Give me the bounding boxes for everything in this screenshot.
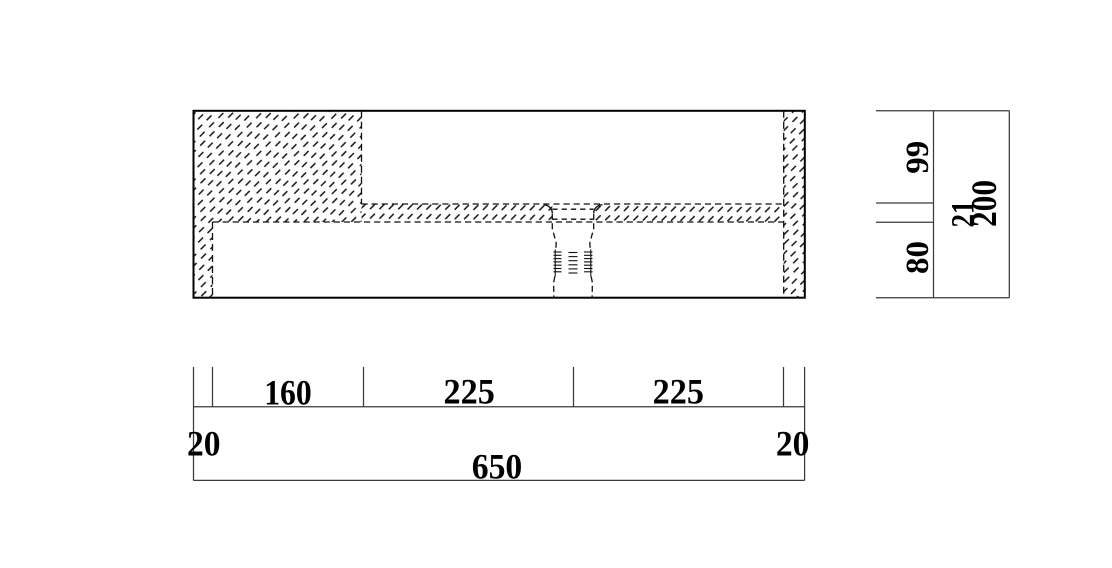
svg-text:650: 650 [472, 447, 523, 487]
svg-text:99: 99 [900, 141, 936, 174]
svg-text:160: 160 [264, 373, 312, 413]
svg-text:225: 225 [653, 372, 704, 412]
svg-text:20: 20 [187, 424, 221, 464]
svg-text:225: 225 [444, 372, 495, 412]
svg-text:80: 80 [900, 241, 936, 274]
svg-text:20: 20 [776, 424, 810, 464]
svg-text:200: 200 [964, 180, 1004, 227]
